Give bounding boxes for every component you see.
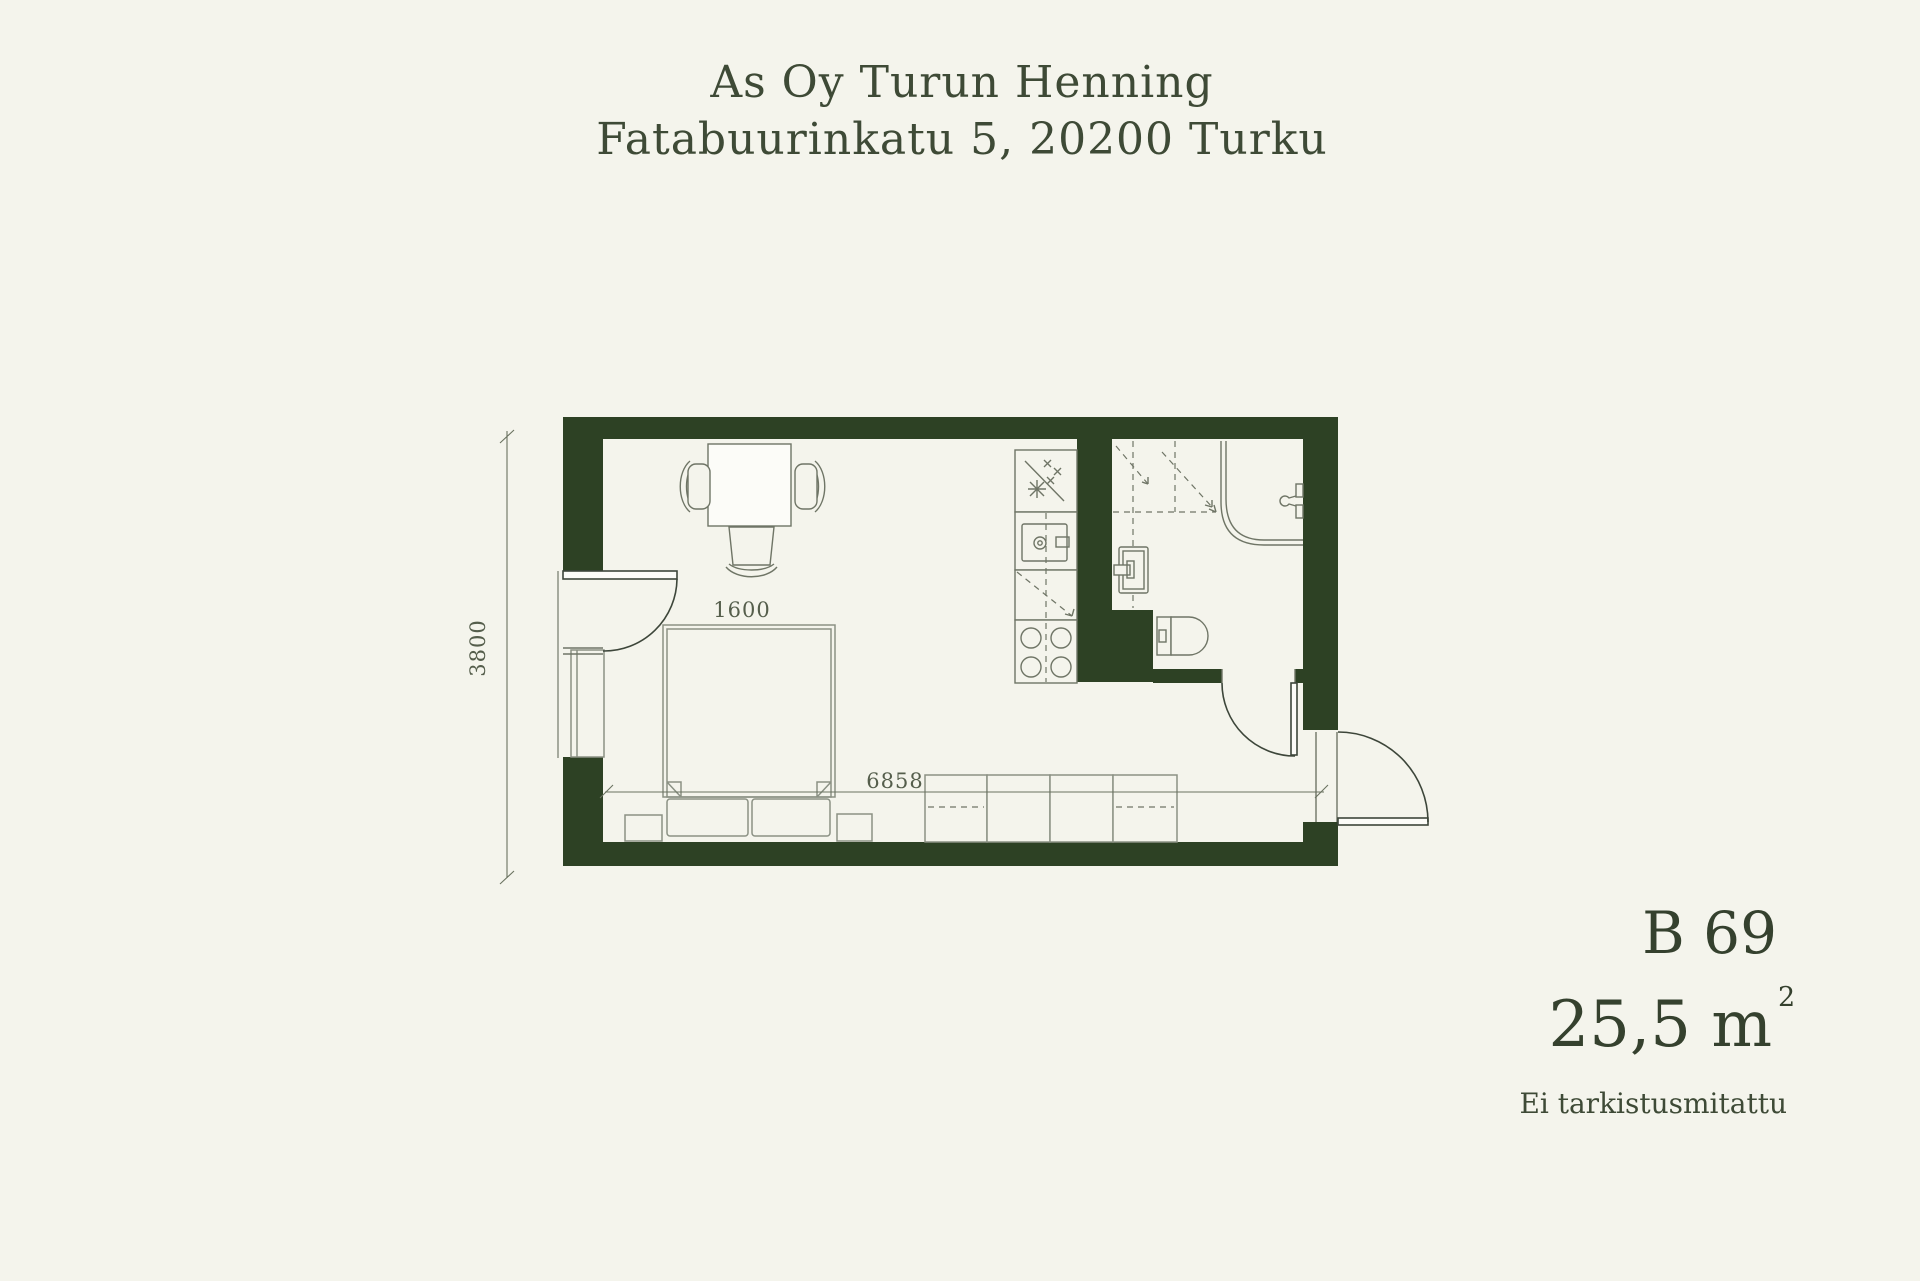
- unit-area-superscript: 2: [1778, 982, 1795, 1013]
- dim-width-label: 6858: [866, 769, 923, 793]
- toilet: [1157, 617, 1208, 655]
- measurement-note: Ei tarkistusmitattu: [1519, 1087, 1787, 1120]
- shower-tap-icon: [1280, 484, 1303, 518]
- balcony-door: [563, 571, 677, 651]
- dining-table: [708, 444, 791, 526]
- bathroom-sink: [1114, 547, 1148, 593]
- window: [558, 571, 604, 758]
- pillow-left: [667, 799, 748, 836]
- dimension-height: 3800: [466, 430, 514, 884]
- dining-chair-right: [795, 461, 825, 512]
- pillow-right: [752, 799, 830, 836]
- unit-id: B 69: [1642, 899, 1777, 967]
- bedside-table-left: [625, 815, 662, 841]
- unit-area: 25,5 m: [1548, 988, 1772, 1062]
- dining-chair-left: [680, 461, 710, 512]
- wardrobes: [925, 775, 1177, 842]
- bathroom: [1113, 441, 1303, 756]
- building-title: As Oy Turun Henning: [709, 57, 1213, 108]
- dining-chair-bottom: [726, 527, 777, 577]
- bed-width-label: 1600: [713, 598, 770, 622]
- kitchen-units: [1015, 450, 1077, 683]
- floor-plan-page: As Oy Turun Henning Fatabuurinkatu 5, 20…: [0, 0, 1920, 1281]
- bedside-table-right: [837, 814, 872, 841]
- building-address: Fatabuurinkatu 5, 20200 Turku: [596, 114, 1328, 165]
- kitchen-sink-cabinet: [1015, 450, 1077, 512]
- floor-plan-drawing: As Oy Turun Henning Fatabuurinkatu 5, 20…: [0, 0, 1920, 1281]
- shower-screen: [1221, 441, 1303, 545]
- entrance-door: [1316, 732, 1428, 825]
- bathroom-door: [1222, 669, 1297, 756]
- bed: [663, 625, 835, 836]
- dim-height-label: 3800: [466, 619, 490, 676]
